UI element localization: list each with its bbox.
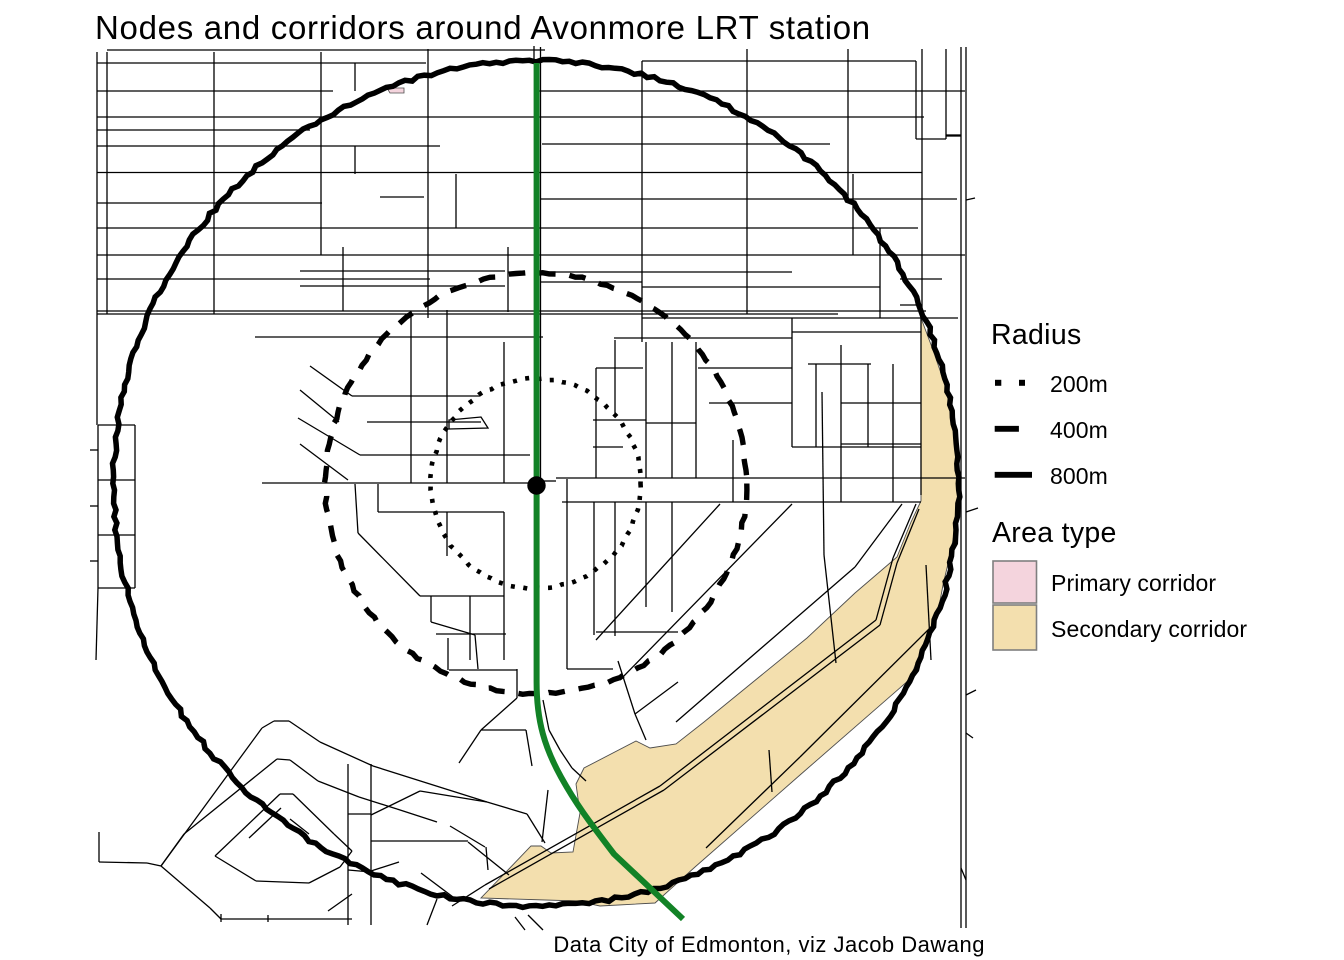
svg-text:400m: 400m — [1050, 417, 1108, 443]
svg-text:Primary corridor: Primary corridor — [1051, 570, 1216, 596]
svg-text:800m: 800m — [1050, 463, 1108, 489]
svg-text:Data City of Edmonton, viz Jac: Data City of Edmonton, viz Jacob Dawang — [553, 932, 985, 957]
svg-text:Nodes and corridors around Avo: Nodes and corridors around Avonmore LRT … — [95, 9, 871, 46]
svg-text:200m: 200m — [1050, 371, 1108, 397]
svg-text:Area type: Area type — [992, 517, 1117, 549]
svg-text:Secondary corridor: Secondary corridor — [1051, 616, 1247, 642]
svg-text:Radius: Radius — [991, 319, 1082, 351]
